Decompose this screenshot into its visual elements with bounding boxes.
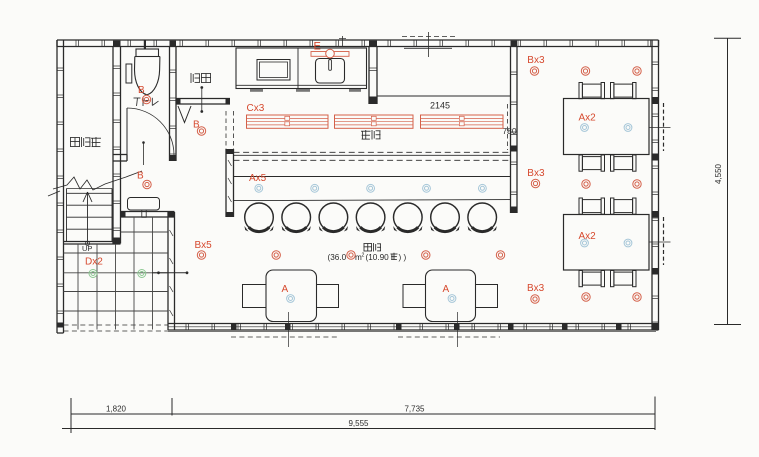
svg-text:Cx3: Cx3 bbox=[247, 103, 265, 114]
svg-text:Bx5: Bx5 bbox=[195, 240, 213, 251]
svg-text:4,550: 4,550 bbox=[714, 163, 723, 184]
svg-text:2: 2 bbox=[362, 253, 365, 259]
svg-text:B: B bbox=[137, 171, 144, 182]
svg-text:1,820: 1,820 bbox=[106, 405, 127, 414]
svg-text:Bx3: Bx3 bbox=[527, 168, 545, 179]
svg-text:E: E bbox=[314, 41, 321, 53]
svg-text:Dx2: Dx2 bbox=[85, 257, 103, 268]
svg-text:B: B bbox=[193, 120, 200, 131]
svg-text:2145: 2145 bbox=[430, 101, 450, 111]
svg-text:UP: UP bbox=[82, 244, 92, 253]
svg-text:Bx3: Bx3 bbox=[527, 283, 545, 294]
svg-text:780: 780 bbox=[502, 126, 516, 136]
svg-text:Bx3: Bx3 bbox=[527, 55, 545, 66]
svg-text:Ax2: Ax2 bbox=[579, 113, 597, 124]
svg-text:A: A bbox=[282, 284, 289, 295]
svg-text:Ax5: Ax5 bbox=[249, 173, 267, 184]
svg-text:) ): ) ) bbox=[399, 253, 407, 262]
svg-text:(10.90: (10.90 bbox=[366, 253, 390, 262]
svg-text:A: A bbox=[443, 284, 450, 295]
svg-text:7,735: 7,735 bbox=[404, 405, 425, 414]
svg-text:9,555: 9,555 bbox=[348, 419, 369, 428]
svg-text:(36.0: (36.0 bbox=[328, 253, 347, 262]
svg-text:B: B bbox=[138, 85, 145, 96]
